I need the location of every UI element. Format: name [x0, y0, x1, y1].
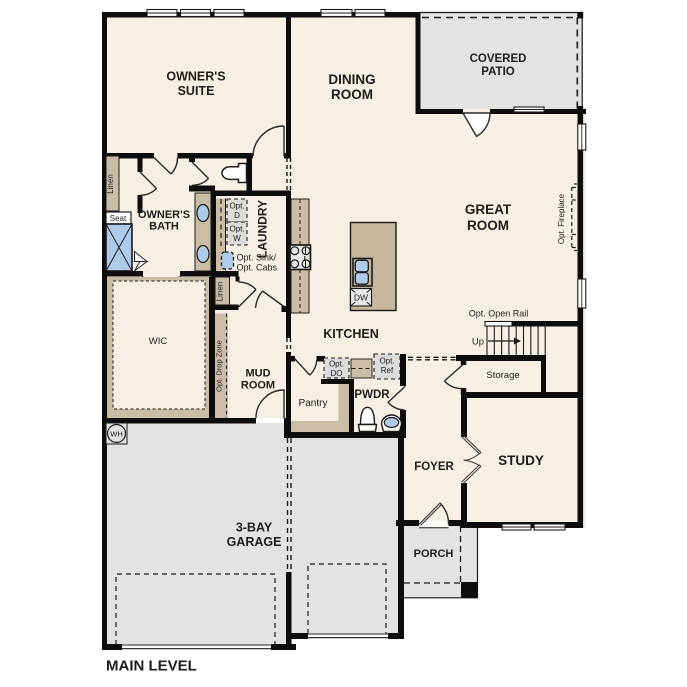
- svg-text:PATIO: PATIO: [481, 66, 514, 78]
- svg-text:D: D: [234, 211, 240, 220]
- svg-text:DW: DW: [354, 293, 368, 303]
- svg-text:OWNER'S: OWNER'S: [138, 209, 190, 221]
- svg-text:STUDY: STUDY: [498, 453, 544, 468]
- svg-text:Linen: Linen: [106, 174, 115, 194]
- svg-text:DINING: DINING: [328, 72, 375, 87]
- svg-text:PWDR: PWDR: [354, 389, 390, 401]
- svg-text:ROOM: ROOM: [331, 87, 373, 102]
- svg-text:BATH: BATH: [149, 221, 179, 233]
- svg-text:WIC: WIC: [149, 336, 168, 347]
- svg-text:Opt. Sink/: Opt. Sink/: [237, 253, 277, 263]
- svg-text:Opt.: Opt.: [329, 360, 344, 369]
- svg-text:PORCH: PORCH: [414, 548, 454, 560]
- svg-text:Up: Up: [472, 337, 484, 348]
- svg-text:MUD: MUD: [245, 368, 270, 380]
- svg-text:Storage: Storage: [486, 370, 519, 381]
- svg-text:Pantry: Pantry: [299, 398, 328, 409]
- svg-text:DO: DO: [331, 369, 343, 378]
- svg-text:SUITE: SUITE: [178, 84, 215, 98]
- svg-text:W: W: [233, 234, 241, 243]
- svg-text:Ref: Ref: [381, 366, 394, 375]
- svg-text:Opt. Cabs: Opt. Cabs: [237, 263, 278, 273]
- svg-text:LAUNDRY: LAUNDRY: [256, 200, 270, 258]
- svg-text:MAIN LEVEL: MAIN LEVEL: [106, 658, 197, 675]
- svg-text:COVERED: COVERED: [470, 53, 527, 65]
- svg-text:Opt. Drop Zone: Opt. Drop Zone: [215, 340, 224, 392]
- svg-text:GREAT: GREAT: [465, 202, 512, 217]
- svg-text:ROOM: ROOM: [467, 218, 509, 233]
- svg-text:Seat: Seat: [110, 214, 127, 223]
- svg-text:WH: WH: [110, 430, 123, 439]
- svg-text:FOYER: FOYER: [414, 461, 454, 473]
- svg-text:Opt. Fireplace: Opt. Fireplace: [557, 193, 566, 244]
- svg-text:GARAGE: GARAGE: [227, 535, 282, 549]
- svg-text:ROOM: ROOM: [241, 380, 275, 392]
- svg-text:OWNER'S: OWNER'S: [166, 70, 225, 84]
- svg-text:3-BAY: 3-BAY: [236, 521, 273, 535]
- svg-text:KITCHEN: KITCHEN: [323, 327, 379, 341]
- svg-text:Opt.: Opt.: [229, 225, 244, 234]
- svg-text:Opt.: Opt.: [229, 202, 244, 211]
- svg-text:Linen: Linen: [216, 282, 225, 302]
- svg-text:Opt. Open Rail: Opt. Open Rail: [469, 309, 529, 319]
- svg-text:Opt.: Opt.: [379, 357, 394, 366]
